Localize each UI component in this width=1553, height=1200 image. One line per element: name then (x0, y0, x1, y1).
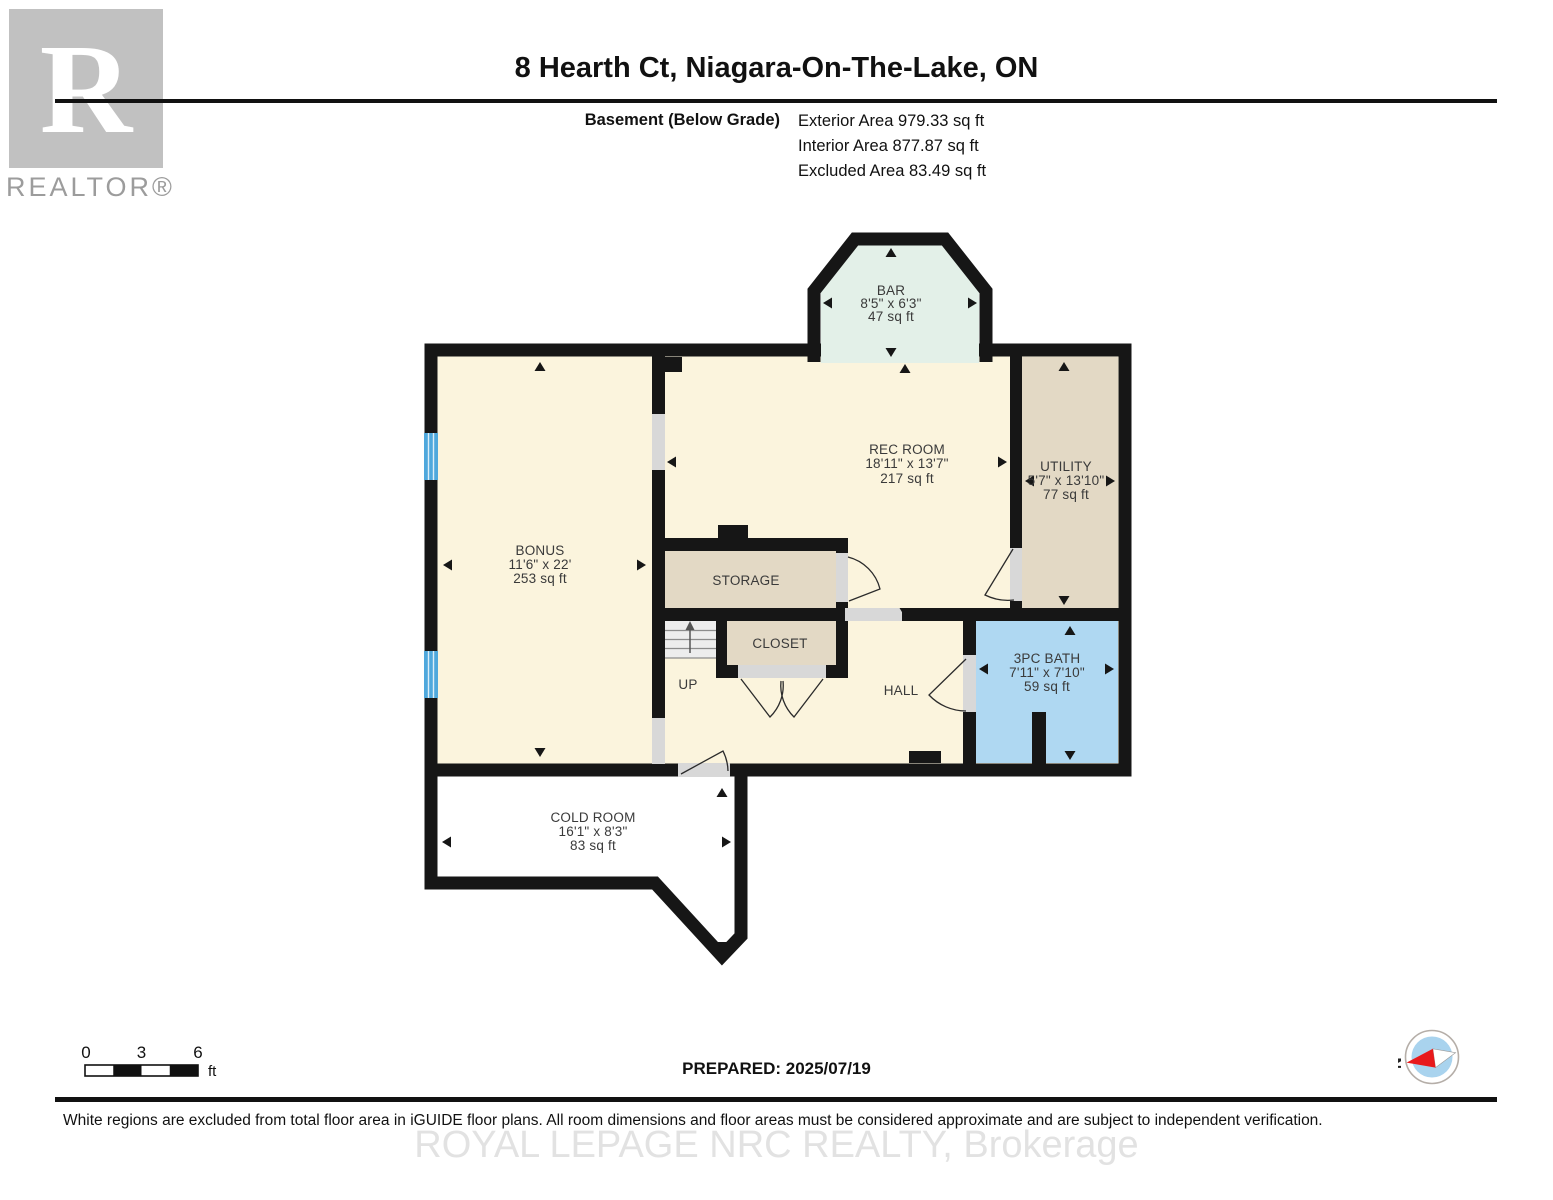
rec-name: REC ROOM (869, 442, 945, 457)
header-divider (55, 99, 1497, 103)
rec-dims: 18'11" x 13'7" (865, 456, 948, 471)
label-hall: HALL (884, 683, 919, 698)
wall-bath-stub (1032, 712, 1046, 770)
wall-storage-stub (718, 525, 748, 538)
label-up: UP (678, 677, 697, 692)
wall-bonus-rec (652, 350, 665, 770)
cold-name: COLD ROOM (550, 810, 635, 825)
label-closet: CLOSET (752, 636, 807, 651)
wall-hall-stub (909, 751, 941, 763)
bath-area: 59 sq ft (1024, 679, 1070, 694)
bath-name: 3PC BATH (1014, 651, 1081, 666)
bonus-name: BONUS (515, 543, 564, 558)
staircase (665, 621, 716, 658)
bar-area: 47 sq ft (868, 309, 914, 324)
wall-junction-notch (652, 357, 682, 372)
footer-divider (55, 1097, 1497, 1102)
utility-name: UTILITY (1040, 459, 1092, 474)
compass: N (1398, 1023, 1468, 1093)
label-bonus: BONUS 11'6" x 22' 253 sq ft (509, 543, 572, 586)
wall-storage-top (652, 538, 848, 551)
brokerage-watermark: ROYAL LEPAGE NRC REALTY, Brokerage (0, 1124, 1553, 1167)
utility-area: 77 sq ft (1043, 487, 1089, 502)
realtor-brand-text: REALTOR® (6, 172, 186, 203)
cold-area: 83 sq ft (570, 838, 616, 853)
rec-area: 217 sq ft (880, 471, 934, 486)
cold-room-outline (431, 770, 741, 956)
realtor-logo: R (9, 9, 163, 168)
window-bonus-lower (424, 651, 438, 698)
cold-dims: 16'1" x 8'3" (559, 824, 628, 839)
bath-dims: 7'11" x 7'10" (1009, 665, 1085, 680)
door-leaf-utility (1010, 548, 1022, 601)
label-storage: STORAGE (712, 573, 779, 588)
realtor-logo-letter: R (40, 25, 132, 153)
bonus-area: 253 sq ft (513, 571, 567, 586)
floor-plan: BAR 8'5" x 6'3" 47 sq ft REC ROOM 18'11"… (0, 0, 1553, 1200)
bonus-dims: 11'6" x 22' (509, 557, 572, 572)
opening-bonus-hall-lower (652, 718, 665, 764)
prepared-date: PREPARED: 2025/07/19 (0, 1059, 1553, 1079)
disclaimer-text: White regions are excluded from total fl… (63, 1112, 1323, 1130)
utility-dims: 5'7" x 13'10" (1028, 473, 1105, 488)
door-leaf-storage (836, 553, 848, 602)
door-leaf-closet (738, 665, 826, 678)
opening-rec-hall (845, 608, 902, 621)
opening-bonus-rec-upper (652, 414, 665, 470)
window-bonus-upper (424, 433, 438, 480)
compass-north-label: N (1398, 1057, 1405, 1069)
door-leaf-bath (963, 655, 976, 712)
door-leaf-cold-room (678, 763, 730, 777)
